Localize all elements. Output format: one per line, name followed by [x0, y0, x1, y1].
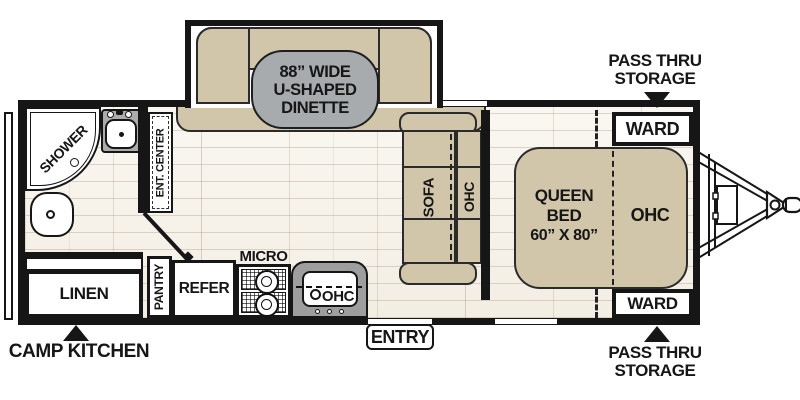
kitchen-ohc-label: OHC	[316, 288, 360, 304]
refer-label: REFER	[179, 280, 230, 298]
sink-knob-1	[315, 309, 320, 314]
bedroom-curtain-top	[595, 110, 598, 147]
pass-thru-top-line2: STORAGE	[615, 70, 696, 88]
sofa-seam-1	[402, 166, 456, 168]
micro-label: MICRO	[226, 249, 301, 263]
sofa-ohc-label: OHC	[461, 182, 477, 212]
sofa-fold-line	[450, 134, 452, 260]
ward-bottom-label: WARD	[627, 294, 677, 314]
pass-thru-bottom-line1: PASS THRU	[608, 344, 701, 362]
camp-kitchen-counter	[25, 257, 143, 271]
bed-label-line1: QUEEN BED	[518, 186, 610, 226]
bottom-window	[495, 318, 557, 325]
coupler-ball	[771, 201, 780, 210]
pantry-cabinet: PANTRY	[147, 256, 172, 318]
linen-label: LINEN	[59, 284, 108, 304]
dinette-label-line3: DINETTE	[281, 99, 349, 117]
sofa-ohc-seam-2	[456, 218, 482, 220]
entry-label: ENTRY	[366, 324, 434, 350]
bed-label-line2: 60” X 80”	[530, 226, 598, 245]
stove-burner-bottom-cell	[241, 292, 286, 313]
sofa-seam-2	[402, 218, 456, 220]
top-window	[443, 100, 487, 107]
pass-thru-bottom-line2: STORAGE	[615, 362, 696, 380]
ward-top-label: WARD	[626, 119, 679, 140]
sink-knob-3	[339, 309, 344, 314]
sink-knob-2	[327, 309, 332, 314]
dinette-bench-left	[196, 27, 250, 104]
pass-thru-top-callout: PASS THRU STORAGE	[580, 52, 730, 88]
bath-sink-drain	[119, 132, 124, 137]
sofa-label: SOFA	[420, 177, 437, 217]
bedroom-curtain-bottom	[595, 289, 598, 318]
hitch-tongue	[693, 138, 800, 272]
bath-faucet-knob-right	[125, 111, 132, 118]
floorplan: 88” WIDE U-SHAPED DINETTE SHOWER ENT. CE…	[0, 0, 800, 400]
bottom-wall	[18, 318, 700, 325]
linen-cabinet: LINEN	[25, 270, 143, 318]
bath-faucet-spout	[116, 110, 123, 115]
rear-wall	[18, 100, 25, 325]
ent-center-label: ENT. CENTER	[155, 128, 167, 197]
pass-thru-top-arrow	[644, 92, 670, 108]
sofa: SOFA	[402, 130, 456, 264]
wardrobe-bottom: WARD	[612, 289, 693, 318]
battery-box	[717, 186, 737, 224]
bed-label: QUEEN BED 60” X 80”	[518, 192, 610, 238]
pass-thru-bottom-arrow	[644, 326, 670, 342]
bath-faucet-knob-left	[107, 111, 114, 118]
sofa-ohc-seam-1	[456, 166, 482, 168]
entry-label-text: ENTRY	[371, 327, 429, 348]
refrigerator: REFER	[172, 260, 236, 318]
pass-thru-top-line1: PASS THRU	[608, 52, 701, 70]
camp-kitchen-arrow	[63, 325, 89, 341]
camp-kitchen-label: CAMP KITCHEN	[4, 342, 154, 362]
wardrobe-top: WARD	[612, 112, 693, 146]
stove	[236, 264, 291, 318]
toilet-flush	[46, 210, 55, 219]
bathroom-wall	[138, 107, 148, 213]
pantry-label: PANTRY	[153, 264, 167, 310]
dinette-label-bubble: 88” WIDE U-SHAPED DINETTE	[251, 50, 379, 129]
rear-bumper	[4, 112, 13, 320]
sofa-ohc: OHC	[456, 130, 482, 264]
shower-drain	[70, 158, 79, 167]
stove-burner-top-cell	[241, 269, 286, 290]
dinette-label-line1: 88” WIDE	[279, 63, 350, 81]
ent-center-cabinet: ENT. CENTER	[148, 112, 173, 213]
living-bedroom-wall	[481, 110, 490, 300]
bed-ohc-label: OHC	[616, 204, 684, 226]
bed-ohc-divider	[612, 151, 614, 285]
sofa-armrest-bottom	[399, 262, 477, 285]
pass-thru-bottom-callout: PASS THRU STORAGE	[580, 344, 730, 380]
dinette-label-line2: U-SHAPED	[274, 81, 357, 99]
dinette-bench-right	[378, 27, 432, 104]
